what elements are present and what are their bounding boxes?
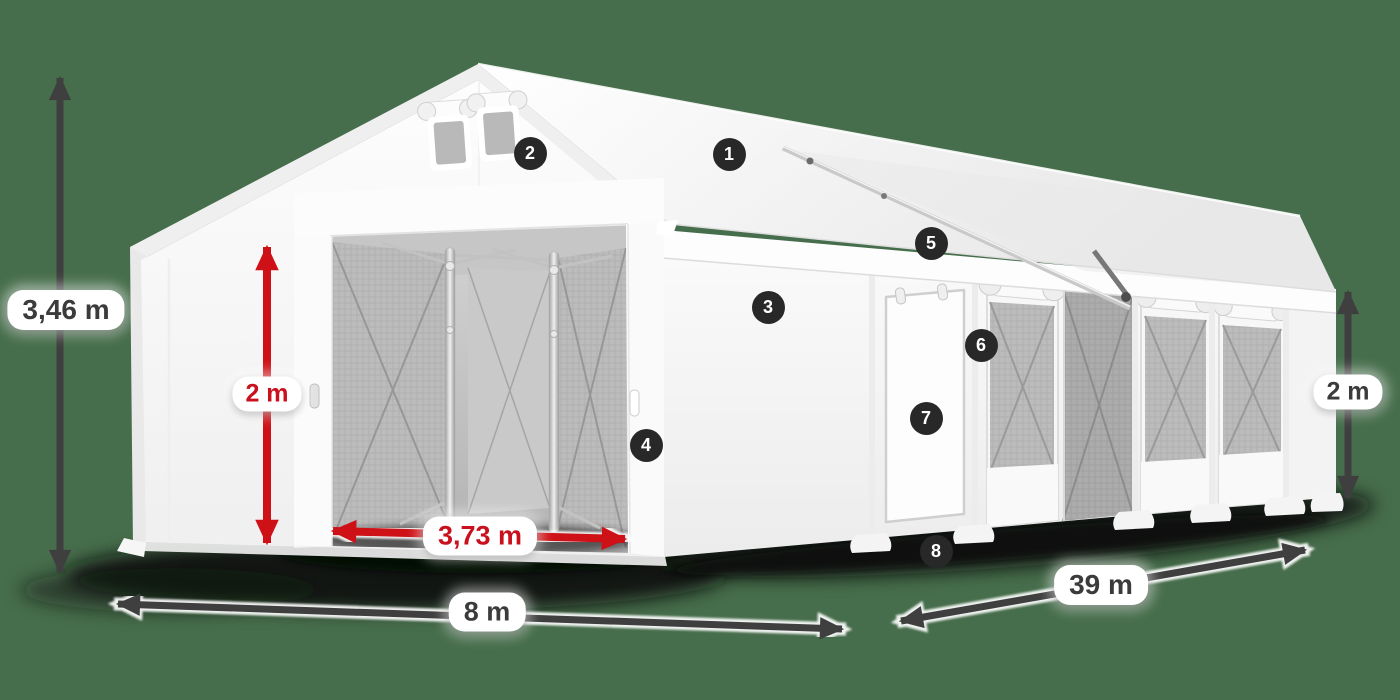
scaffold-pole-right xyxy=(549,252,559,532)
side-window-1 xyxy=(978,272,1066,527)
door-handle-right xyxy=(630,390,639,416)
dimension-label-side-wall-height: 2 m xyxy=(1313,375,1382,410)
entrance-interior xyxy=(320,218,640,558)
side-mesh-opening xyxy=(1063,289,1133,521)
dimension-label-door-height: 2 m xyxy=(232,377,301,412)
part-marker-7: 7 xyxy=(910,402,943,435)
dimension-label-side-length: 39 m xyxy=(1054,565,1148,605)
entrance-right-post xyxy=(626,222,664,557)
part-marker-1: 1 xyxy=(713,138,746,171)
tent-diagram-svg xyxy=(0,0,1400,700)
part-marker-6: 6 xyxy=(965,329,998,362)
part-marker-2: 2 xyxy=(514,137,547,170)
side-window-2 xyxy=(1135,287,1216,514)
dimension-label-front-width: 8 m xyxy=(449,593,526,632)
door-handle-left xyxy=(310,384,319,408)
dimension-label-door-width: 3,73 m xyxy=(423,517,537,556)
scaffold-pole-left xyxy=(445,248,455,526)
part-marker-8: 8 xyxy=(920,535,953,568)
part-marker-4: 4 xyxy=(630,429,663,462)
part-marker-5: 5 xyxy=(915,227,948,260)
part-marker-3: 3 xyxy=(752,291,785,324)
side-window-3 xyxy=(1213,297,1290,507)
dimension-label-total-height: 3,46 m xyxy=(7,290,124,330)
product-diagram: 1 2 3 4 5 6 7 8 3,46 m 2 m 3,73 m 8 m 39… xyxy=(0,0,1400,700)
